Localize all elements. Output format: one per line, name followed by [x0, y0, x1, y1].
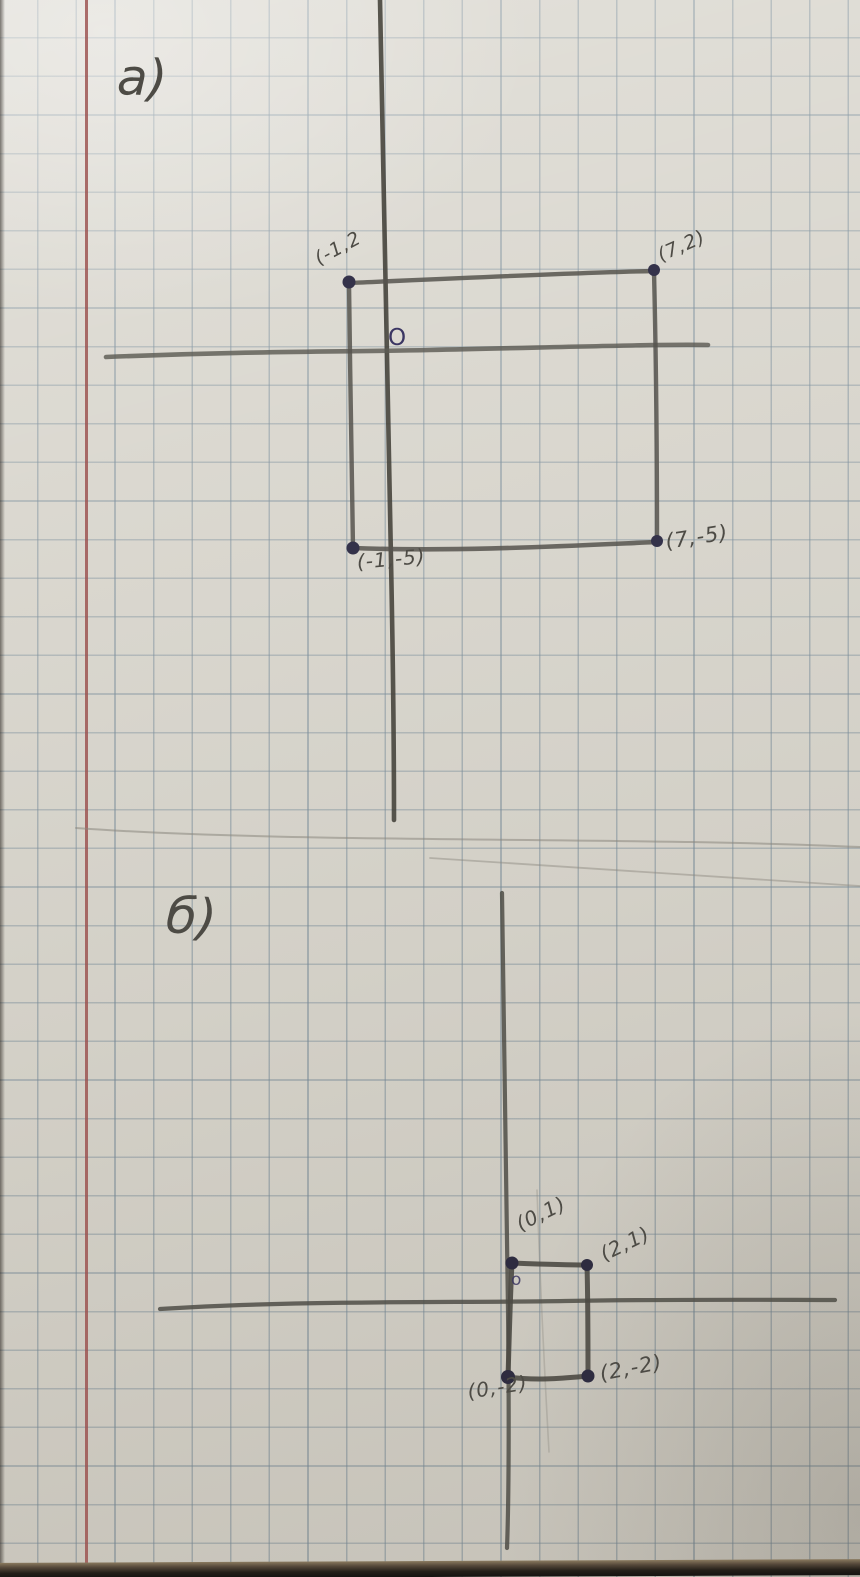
rectangle-a-top-edge: [349, 271, 654, 283]
hand-drawn-strokes: [0, 0, 860, 1577]
rectangle-a-right-edge: [654, 271, 657, 542]
vertex-dot-b-top-right: [581, 1259, 593, 1271]
square-b-top-edge: [512, 1263, 587, 1265]
origin-label-b: o: [511, 1272, 522, 1289]
vertex-dot-a-top-left: [343, 276, 356, 289]
y-axis-b: [502, 893, 509, 1548]
y-axis-a: [380, 0, 394, 820]
section-b-label: б): [165, 890, 219, 943]
stray-pencil-line-1: [76, 828, 860, 847]
vertex-dot-b-top-left: [506, 1257, 519, 1270]
stray-pencil-line-3: [537, 1190, 549, 1452]
x-axis-b: [160, 1300, 835, 1309]
origin-label-a: O: [388, 327, 407, 350]
notebook-page: a) (-1,2 (7,2) O (-1,-5) (7,-5) б) (0,1)…: [0, 0, 860, 1577]
rectangle-a-left-edge: [349, 283, 353, 548]
vertex-dot-a-bottom-right: [651, 535, 663, 547]
stray-pencil-line-2: [430, 858, 860, 886]
square-b-right-edge: [587, 1265, 588, 1376]
vertex-label-a-bottom-left: (-1,-5): [356, 546, 426, 572]
vertex-dot-a-top-right: [648, 264, 660, 276]
desk-edge: [0, 1559, 860, 1577]
vertex-dot-b-bottom-right: [582, 1370, 595, 1383]
section-a-label: a): [116, 52, 168, 104]
